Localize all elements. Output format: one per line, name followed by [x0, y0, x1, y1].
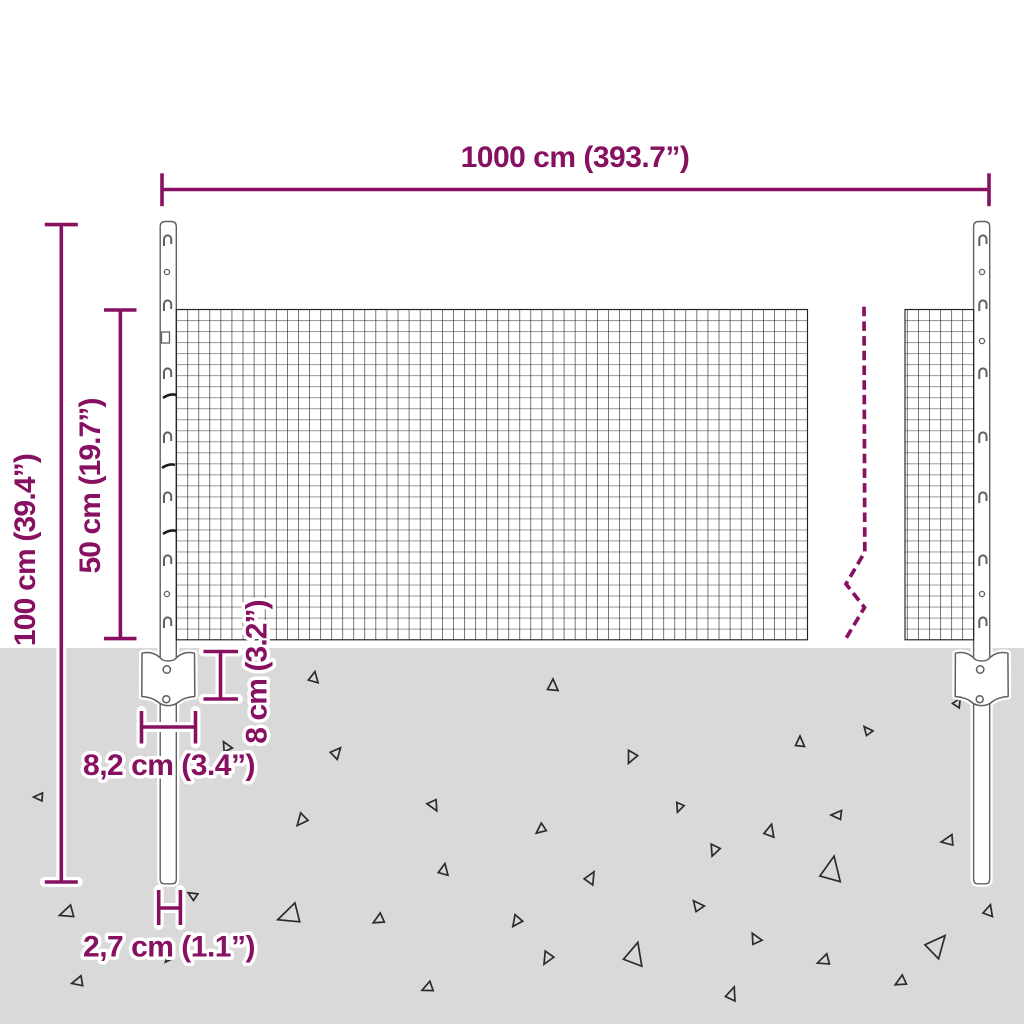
svg-text:2,7 cm (1.1”): 2,7 cm (1.1”): [83, 931, 255, 964]
svg-text:1000 cm (393.7”): 1000 cm (393.7”): [461, 141, 690, 174]
svg-text:8,2 cm (3.4”): 8,2 cm (3.4”): [83, 749, 255, 782]
svg-text:8 cm (3.2”): 8 cm (3.2”): [241, 600, 274, 744]
svg-text:100 cm (39.4”): 100 cm (39.4”): [9, 454, 42, 646]
svg-text:50 cm (19.7”): 50 cm (19.7”): [74, 398, 107, 573]
